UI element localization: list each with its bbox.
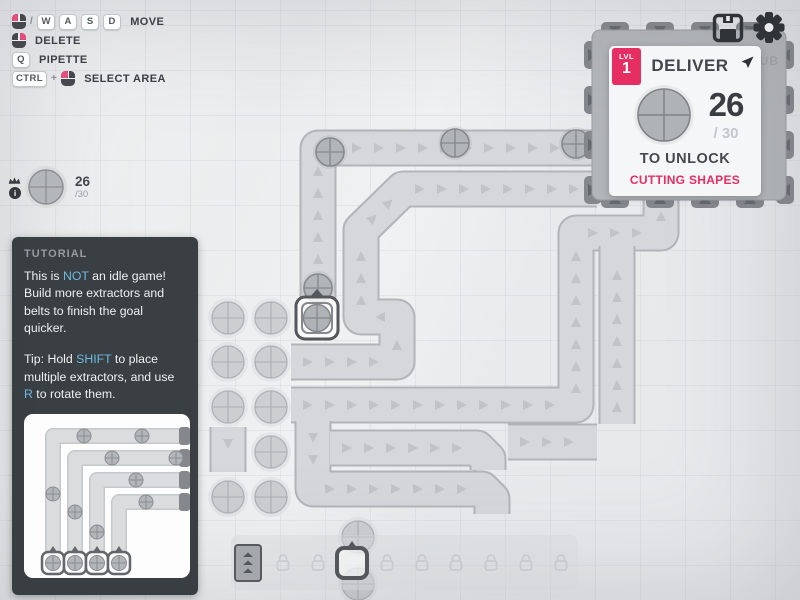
mouse-left-button-icon	[61, 71, 75, 86]
goal-count: 26	[75, 175, 90, 189]
belt-icon	[234, 544, 262, 582]
level-panel: LVL 1 DELIVER 26 / 30 TO UNLOCK CUTTING …	[609, 46, 761, 196]
lock-icon	[518, 553, 534, 572]
hint-separator: +	[51, 73, 57, 84]
hotbar-slot-locked-5	[370, 541, 405, 585]
reward-text: CUTTING SHAPES	[609, 173, 761, 187]
hint-pipette-label: PIPETTE	[39, 54, 88, 66]
hint-select-area: CTRL + SELECT AREA	[12, 69, 166, 88]
key-s: S	[81, 14, 99, 30]
lock-icon	[483, 553, 499, 572]
lock-icon	[448, 553, 464, 572]
key-d: D	[103, 14, 121, 30]
hotbar-slot-locked-7	[439, 541, 474, 585]
hotbar-slot-locked-9	[509, 541, 544, 585]
gear-icon	[751, 10, 787, 45]
game-screen: / W A S D MOVE DELETE Q PIPETTE CTRL + S…	[0, 0, 800, 600]
hotbar-slot-locked-2	[266, 541, 301, 585]
hotbar-slot-miner-selected[interactable]	[335, 541, 370, 585]
unlock-text: TO UNLOCK	[609, 151, 761, 167]
lock-icon	[379, 553, 395, 572]
hotbar-slot-belt[interactable]	[231, 541, 266, 585]
level-badge: LVL 1	[612, 48, 641, 85]
deliver-count: 26	[697, 86, 755, 124]
tutorial-panel: TUTORIAL This is NOT an idle game! Build…	[12, 237, 198, 595]
hotbar-slot-locked-8	[474, 541, 509, 585]
hotbar	[231, 535, 578, 590]
hint-move: / W A S D MOVE	[12, 12, 166, 31]
goal-total: /30	[75, 190, 90, 200]
pinned-goal: i 26 /30	[8, 164, 90, 210]
extractor-building[interactable]	[296, 289, 338, 339]
tutorial-paragraph-1: This is NOT an idle game! Build more ext…	[24, 268, 186, 338]
key-q: Q	[12, 52, 30, 68]
lock-icon	[310, 553, 326, 572]
hotbar-slot-locked-3	[300, 541, 335, 585]
hint-delete-label: DELETE	[35, 35, 81, 47]
hotbar-slot-locked-10	[543, 541, 578, 585]
hotbar-slot-locked-6	[404, 541, 439, 585]
deliver-title: DELIVER	[641, 56, 739, 76]
hint-select-area-label: SELECT AREA	[84, 73, 166, 85]
save-button[interactable]	[712, 13, 744, 46]
hint-pipette: Q PIPETTE	[12, 50, 166, 69]
tutorial-illustration-image	[24, 414, 190, 578]
svg-text:i: i	[13, 188, 15, 198]
floppy-disk-icon	[712, 13, 744, 43]
mouse-right-button-icon	[12, 33, 26, 48]
lock-icon	[553, 553, 569, 572]
key-ctrl: CTRL	[12, 71, 47, 87]
hint-separator: /	[30, 16, 33, 27]
tutorial-paragraph-2: Tip: Hold SHIFT to place multiple extrac…	[24, 351, 186, 403]
miner-icon-selected	[335, 546, 369, 580]
hint-delete: DELETE	[12, 31, 166, 50]
settings-button[interactable]	[751, 10, 787, 48]
pin-toggle-icon[interactable]	[741, 56, 754, 69]
extractor-resource-circle	[304, 305, 331, 332]
keybind-hints: / W A S D MOVE DELETE Q PIPETTE CTRL + S…	[12, 12, 166, 88]
deliver-total: / 30	[697, 125, 755, 142]
lock-icon	[414, 553, 430, 572]
tutorial-header: TUTORIAL	[24, 247, 186, 263]
goal-shape-circle	[23, 164, 69, 210]
deliver-shape-circle	[633, 84, 695, 146]
info-icon[interactable]: i	[9, 187, 21, 199]
key-w: W	[37, 14, 55, 30]
hint-move-label: MOVE	[130, 16, 164, 28]
crown-icon	[8, 176, 21, 185]
key-a: A	[59, 14, 77, 30]
mouse-left-button-icon	[12, 14, 26, 29]
lock-icon	[275, 553, 291, 572]
